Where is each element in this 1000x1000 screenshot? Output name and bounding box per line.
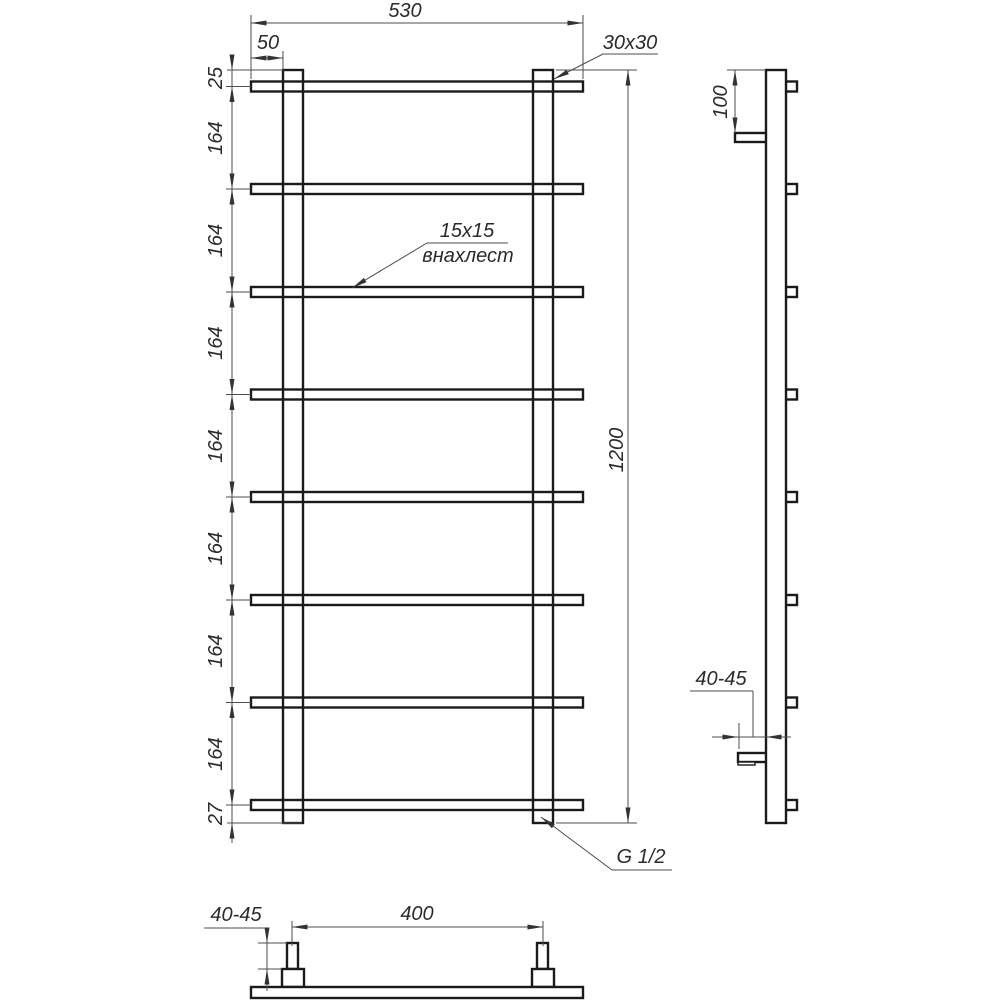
thread-label: G 1/2 <box>617 846 666 868</box>
technical-drawing-page: 530 50 <box>0 0 1000 1000</box>
dim-pitch-label: 164 <box>205 634 227 667</box>
towel-rail-drawing: 530 50 <box>0 0 1000 1000</box>
dim-height-label: 1200 <box>606 428 628 473</box>
dim-pitch-label: 164 <box>205 429 227 462</box>
callout-rung-tube: 15x15 внахлест <box>352 220 514 288</box>
dim-400: 400 <box>292 903 543 946</box>
dim-bottom-gap-label: 27 <box>205 802 227 826</box>
side-view: 100 40-45 <box>690 70 797 823</box>
dim-pitch-label: 164 <box>205 224 227 257</box>
dim-bracket-offset-label: 100 <box>710 85 732 118</box>
connector-stem-right <box>537 943 548 969</box>
wall-bracket-bottom-lip <box>738 762 755 765</box>
dim-pitch-label: 164 <box>205 737 227 770</box>
dim-530: 530 <box>251 0 583 79</box>
dim-pitch-label: 164 <box>205 326 227 359</box>
post-tube-label: 30x30 <box>603 32 658 54</box>
dim-post-offset-label: 50 <box>257 32 279 54</box>
callout-post-tube: 30x30 <box>554 32 658 79</box>
rung-tube-label: 15x15 <box>440 220 495 242</box>
dim-connector-spacing-label: 400 <box>400 903 433 925</box>
dim-pitch-label: 164 <box>205 532 227 565</box>
side-post-profile <box>766 70 786 823</box>
wall-bracket-top <box>735 133 768 142</box>
dim-width-label: 530 <box>388 0 421 22</box>
rung-mount-label: внахлест <box>422 245 513 267</box>
dim-connector-height-label: 40-45 <box>210 904 262 926</box>
dim-100: 100 <box>710 70 766 133</box>
connector-base-right <box>532 969 554 987</box>
dim-pitch-label: 164 <box>205 121 227 154</box>
front-view: 530 50 <box>205 0 672 870</box>
connector-base-left <box>282 969 304 987</box>
connector-stem-left <box>287 943 298 969</box>
dim-wall-clearance-label: 40-45 <box>695 668 747 690</box>
wall-bracket-bottom <box>738 753 768 762</box>
bottom-view: 400 40-45 <box>204 903 583 998</box>
callout-thread: G 1/2 <box>541 817 672 870</box>
dim-50: 50 <box>251 32 283 69</box>
dim-connector-height: 40-45 <box>204 904 287 991</box>
dim-top-gap-label: 25 <box>205 66 227 90</box>
bottom-rail <box>251 987 583 998</box>
